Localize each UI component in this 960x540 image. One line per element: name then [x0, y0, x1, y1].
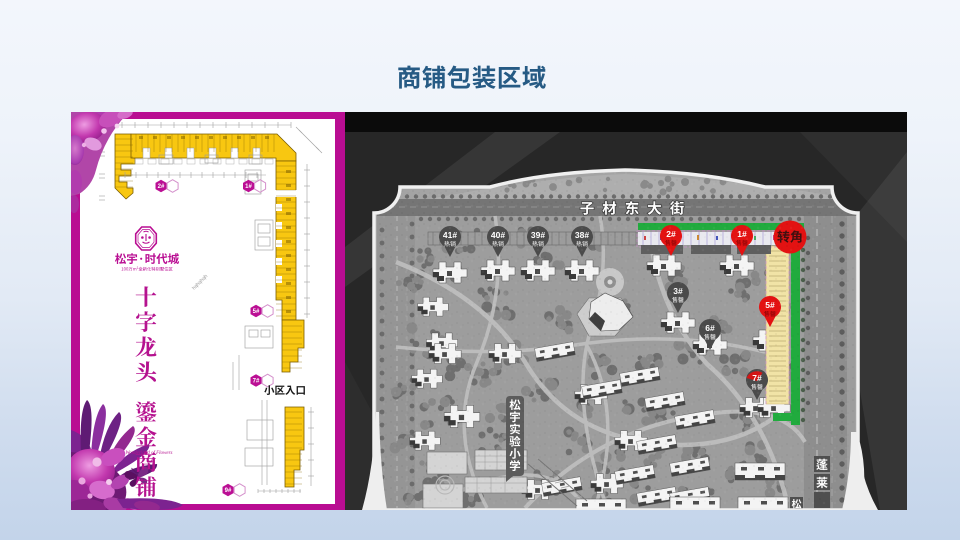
svg-text:5#: 5# — [253, 309, 260, 315]
svg-text:9#: 9# — [225, 488, 232, 494]
svg-text:7#: 7# — [253, 379, 260, 385]
svg-text:2#: 2# — [158, 184, 165, 190]
svg-text:1#: 1# — [245, 184, 252, 190]
svg-text:Wonderland of Flowers: Wonderland of Flowers — [125, 451, 172, 456]
